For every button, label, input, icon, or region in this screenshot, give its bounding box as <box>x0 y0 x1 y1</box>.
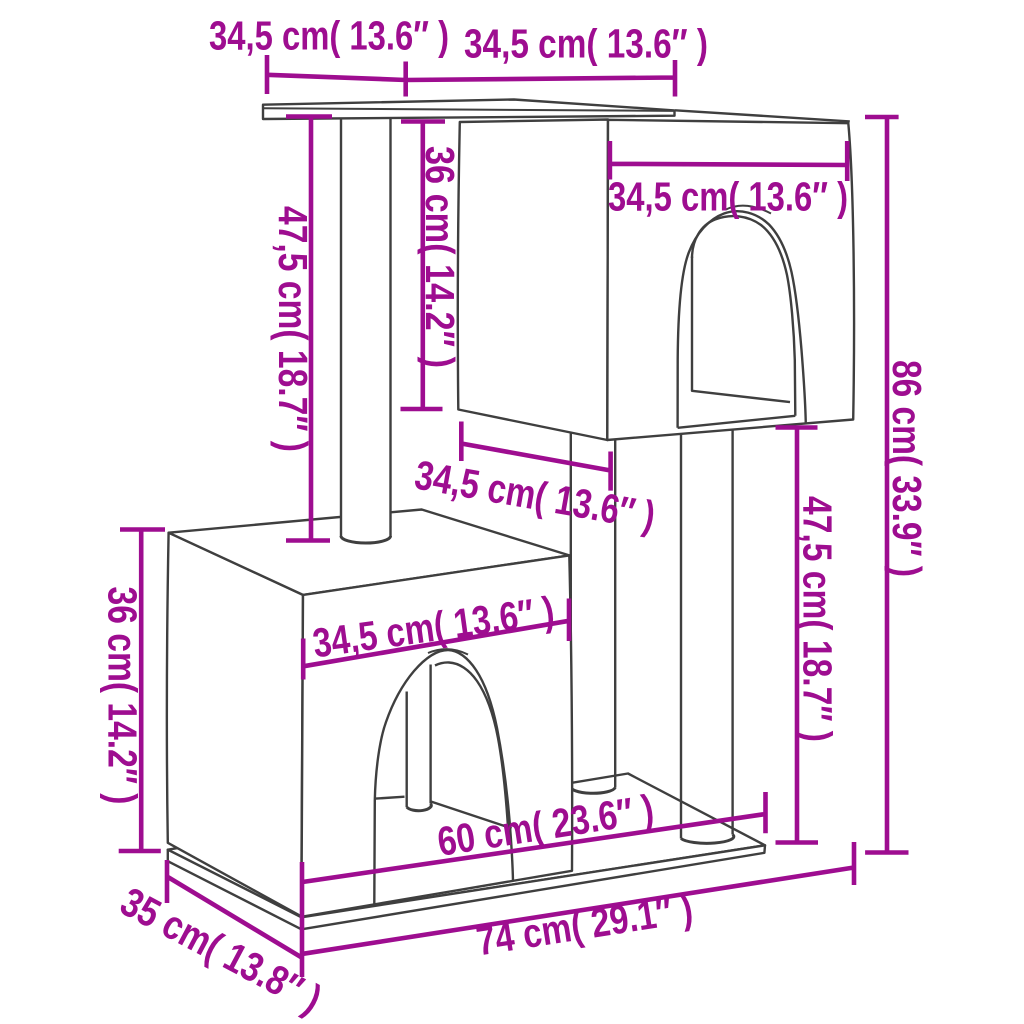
svg-text:86 cm( 33.9″ ): 86 cm( 33.9″ ) <box>884 360 930 577</box>
svg-text:36 cm( 14.2″ ): 36 cm( 14.2″ ) <box>100 587 146 805</box>
svg-text:34,5 cm( 13.6″ ): 34,5 cm( 13.6″ ) <box>209 13 449 59</box>
svg-text:34,5 cm( 13.6″ ): 34,5 cm( 13.6″ ) <box>464 21 708 67</box>
svg-text:47,5 cm( 18.7″ ): 47,5 cm( 18.7″ ) <box>795 496 841 742</box>
svg-text:47,5 cm( 18.7″ ): 47,5 cm( 18.7″ ) <box>270 206 316 452</box>
svg-text:74 cm( 29.1″ ): 74 cm( 29.1″ ) <box>473 885 695 964</box>
svg-text:34,5 cm( 13.6″ ): 34,5 cm( 13.6″ ) <box>608 174 848 220</box>
svg-text:36 cm( 14.2″ ): 36 cm( 14.2″ ) <box>417 146 463 368</box>
